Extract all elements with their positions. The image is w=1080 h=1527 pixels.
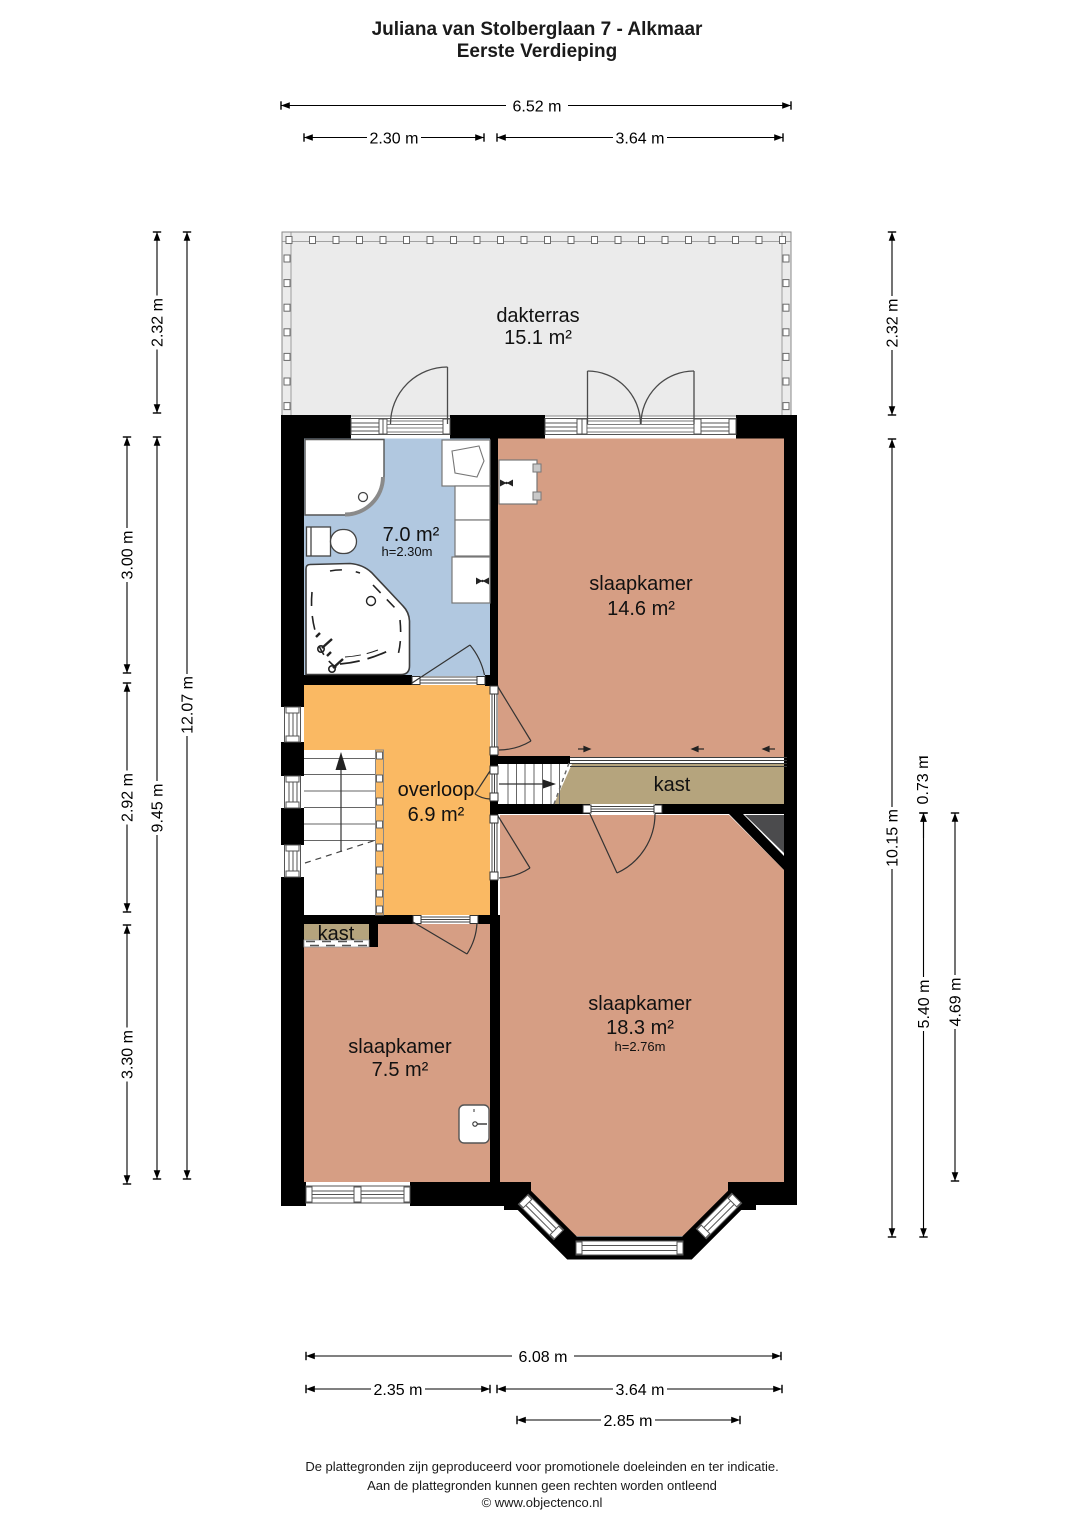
svg-text:7.5 m²: 7.5 m²	[372, 1059, 429, 1081]
svg-text:© www.objectenco.nl: © www.objectenco.nl	[482, 1495, 603, 1510]
svg-text:9.45 m: 9.45 m	[150, 784, 167, 833]
svg-text:0.73 m: 0.73 m	[915, 756, 932, 805]
svg-text:kast: kast	[654, 774, 691, 796]
svg-text:3.30 m: 3.30 m	[120, 1030, 137, 1079]
svg-text:overloop: overloop	[398, 779, 475, 801]
svg-text:3.00 m: 3.00 m	[120, 531, 137, 580]
svg-text:slaapkamer: slaapkamer	[348, 1036, 452, 1058]
svg-text:Eerste Verdieping: Eerste Verdieping	[457, 41, 618, 62]
svg-text:2.32 m: 2.32 m	[150, 298, 167, 347]
svg-text:15.1 m²: 15.1 m²	[504, 327, 572, 349]
svg-text:7.0 m²: 7.0 m²	[383, 524, 440, 546]
svg-text:4.69 m: 4.69 m	[948, 978, 965, 1027]
svg-text:kast: kast	[318, 923, 355, 945]
svg-text:3.64 m: 3.64 m	[616, 131, 665, 148]
svg-text:Juliana van Stolberglaan 7 - A: Juliana van Stolberglaan 7 - Alkmaar	[372, 19, 703, 40]
svg-text:slaapkamer: slaapkamer	[588, 993, 692, 1015]
svg-text:14.6 m²: 14.6 m²	[607, 598, 675, 620]
svg-text:Aan de plattegronden kunnen ge: Aan de plattegronden kunnen geen rechten…	[367, 1478, 717, 1493]
svg-text:12.07 m: 12.07 m	[180, 676, 197, 734]
svg-text:2.35 m: 2.35 m	[374, 1382, 423, 1399]
svg-text:De plattegronden zijn geproduc: De plattegronden zijn geproduceerd voor …	[305, 1459, 778, 1474]
svg-text:slaapkamer: slaapkamer	[589, 573, 693, 595]
svg-text:6.52 m: 6.52 m	[513, 99, 562, 116]
svg-text:h=2.76m: h=2.76m	[615, 1039, 666, 1054]
svg-text:6.08 m: 6.08 m	[519, 1349, 568, 1366]
svg-text:5.40 m: 5.40 m	[916, 980, 933, 1029]
svg-text:2.85 m: 2.85 m	[604, 1413, 653, 1430]
svg-text:dakterras: dakterras	[496, 305, 579, 327]
svg-text:18.3 m²: 18.3 m²	[606, 1017, 674, 1039]
svg-text:10.15 m: 10.15 m	[885, 809, 902, 867]
svg-text:6.9 m²: 6.9 m²	[408, 804, 465, 826]
svg-text:2.32 m: 2.32 m	[885, 299, 902, 348]
svg-text:h=2.30m: h=2.30m	[382, 544, 433, 559]
svg-text:2.30 m: 2.30 m	[370, 131, 419, 148]
svg-text:2.92 m: 2.92 m	[120, 773, 137, 822]
svg-text:3.64 m: 3.64 m	[616, 1382, 665, 1399]
